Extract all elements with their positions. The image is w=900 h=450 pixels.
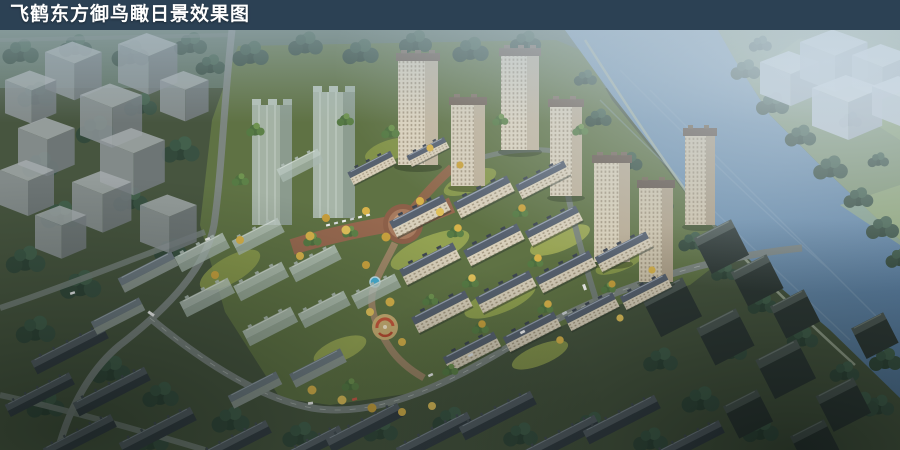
rendering-image: 飞鹤东方御鸟瞰日景效果图: [0, 0, 900, 450]
vignette-bottom-right: [0, 28, 900, 450]
title-text: 飞鹤东方御鸟瞰日景效果图: [10, 0, 250, 30]
aerial-scene: [0, 0, 900, 450]
title-bar: 飞鹤东方御鸟瞰日景效果图: [0, 0, 900, 30]
